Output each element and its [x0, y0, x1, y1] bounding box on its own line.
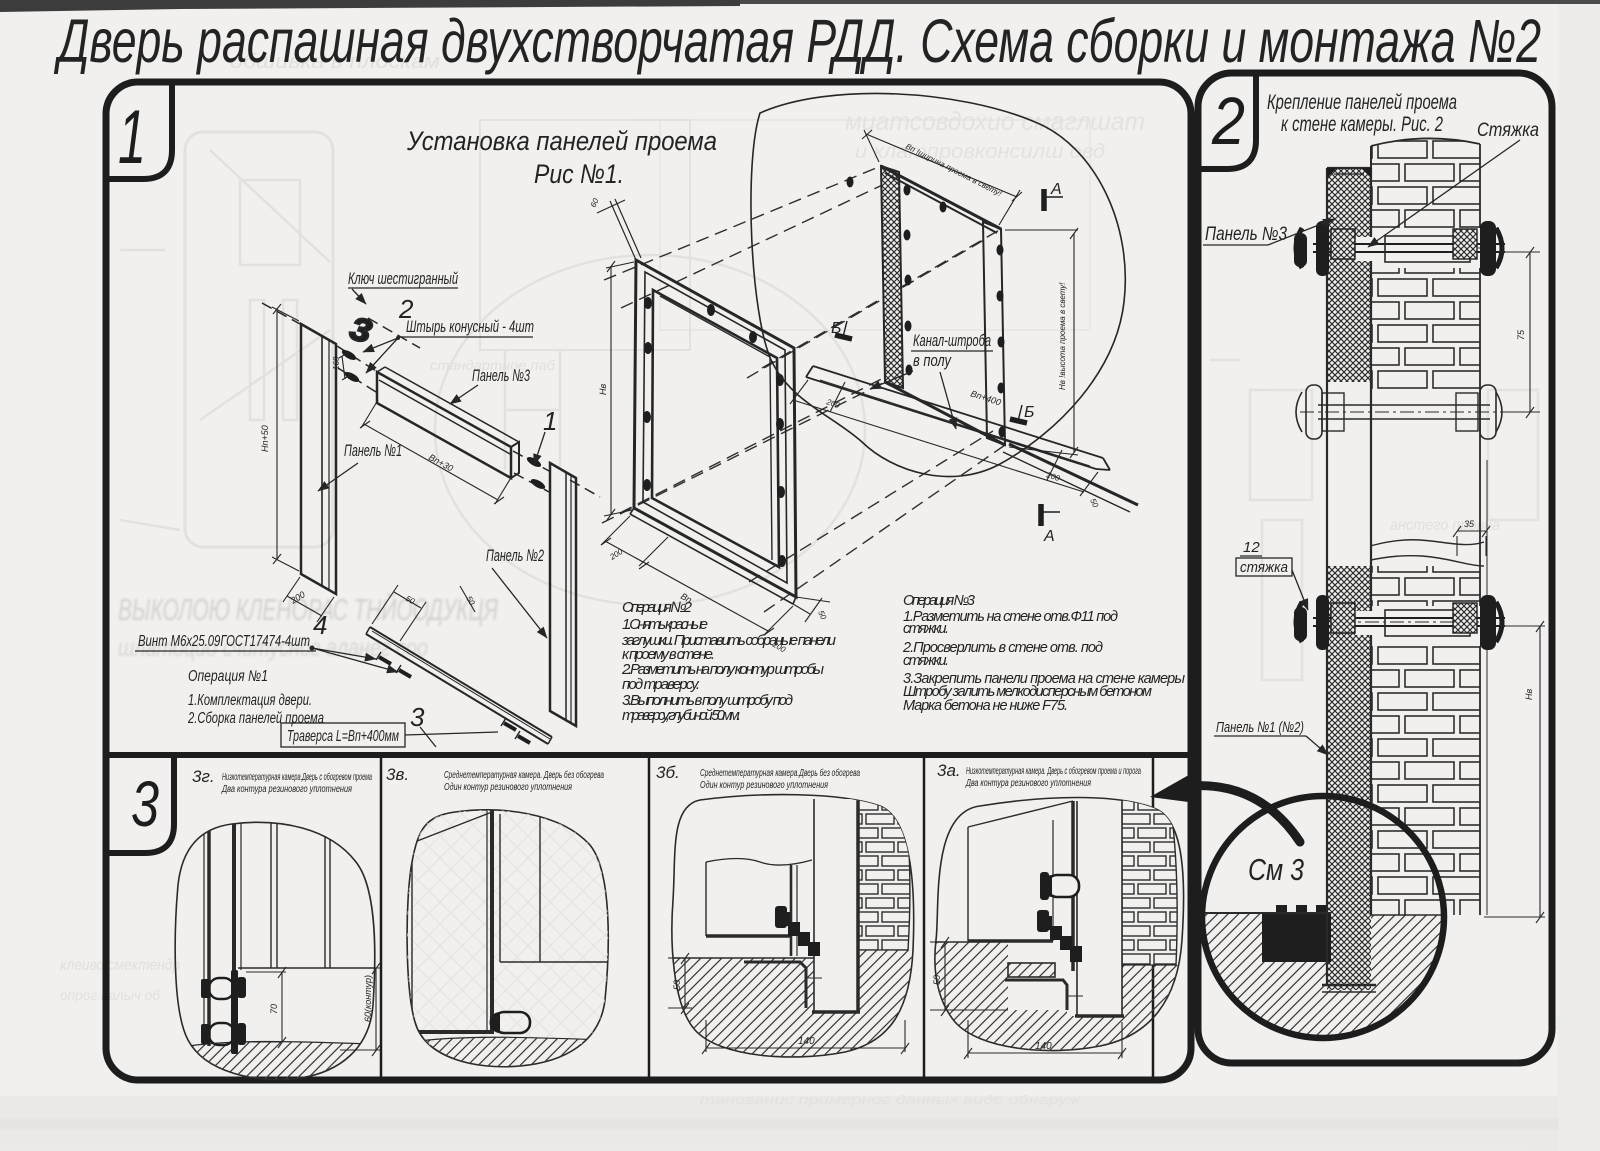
- svg-text:2.Сборка панелей проема: 2.Сборка панелей проема: [187, 710, 324, 727]
- svg-text:4: 4: [313, 610, 327, 640]
- svg-text:Среднетемпературная камера. Дв: Среднетемпературная камера. Дверь без об…: [444, 769, 604, 781]
- svg-text:ВЫКОЛОЮ КЛЕНОРАС ТНЙООДУКЦЯ: ВЫКОЛОЮ КЛЕНОРАС ТНЙООДУКЦЯ: [118, 591, 499, 627]
- svg-text:Ключ шестигранный: Ключ шестигранный: [348, 269, 458, 288]
- svg-text:Канал-штроба: Канал-штроба: [913, 331, 991, 350]
- svg-text:клеиво смектендр: клеиво смектендр: [60, 957, 180, 974]
- svg-text:Один контур резинового уплотне: Один контур резинового уплотнения: [444, 782, 572, 793]
- svg-text:в полу: в полу: [913, 351, 952, 370]
- svg-text:Нв !высота проема в свету!: Нв !высота проема в свету!: [1058, 282, 1067, 390]
- svg-text:140: 140: [1035, 1041, 1052, 1052]
- svg-text:Операция №2: Операция №2: [622, 599, 693, 616]
- svg-text:Два контура резинового уплотне: Два контура резинового уплотнения: [221, 784, 352, 795]
- svg-text:См 3: См 3: [1248, 852, 1304, 887]
- svg-text:опрог налыч об: опрог налыч об: [60, 987, 161, 1003]
- svg-text:Нn+50: Нn+50: [260, 425, 270, 452]
- svg-text:3г.: 3г.: [192, 767, 215, 786]
- svg-text:стяжки.: стяжки.: [903, 653, 949, 669]
- svg-text:3б.: 3б.: [656, 763, 680, 782]
- svg-text:Один контур резинового уплотне: Один контур резинового уплотнения: [700, 780, 828, 791]
- svg-text:Нв: Нв: [1524, 689, 1534, 700]
- svg-text:Операция №1: Операция №1: [188, 668, 268, 685]
- svg-text:Дверь распашная двухстворчатая: Дверь распашная двухстворчатая РДД. Схем…: [54, 7, 1541, 75]
- svg-text:160: 160: [332, 356, 341, 370]
- svg-text:Б: Б: [831, 320, 841, 337]
- svg-text:А: А: [1050, 181, 1062, 198]
- svg-text:1.Снять красные: 1.Снять красные: [622, 616, 708, 633]
- svg-text:Установка панелей проема: Установка панелей проема: [406, 126, 717, 156]
- svg-text:А: А: [1043, 528, 1055, 545]
- svg-text:Нв: Нв: [598, 384, 608, 395]
- svg-text:Марка бетона не ниже F75.: Марка бетона не ниже F75.: [903, 698, 1068, 714]
- svg-text:60(контур): 60(контур): [363, 975, 373, 1022]
- svg-text:и клатпровконсилш овд: и клатпровконсилш овд: [855, 141, 1105, 163]
- svg-text:Рис №1.: Рис №1.: [534, 159, 624, 189]
- svg-text:70: 70: [269, 1004, 279, 1014]
- svg-text:35: 35: [1464, 519, 1475, 529]
- svg-text:Крепление панелей проема: Крепление панелей проема: [1267, 91, 1457, 114]
- svg-text:75: 75: [1516, 329, 1526, 340]
- svg-text:Низкотемпературная камера.Двер: Низкотемпературная камера.Дверь с обогре…: [222, 771, 372, 783]
- svg-text:1: 1: [543, 406, 557, 436]
- svg-text:Панель №1 (№2): Панель №1 (№2): [1216, 719, 1304, 736]
- svg-text:Панель №3: Панель №3: [472, 366, 530, 385]
- svg-text:траверсу, глубиной 50мм.: траверсу, глубиной 50мм.: [622, 707, 741, 724]
- svg-text:1: 1: [118, 95, 146, 180]
- svg-text:стяжка: стяжка: [1240, 559, 1288, 576]
- svg-text:Панель №2: Панель №2: [486, 546, 544, 565]
- svg-text:3а.: 3а.: [937, 761, 961, 780]
- svg-text:Два контура резинового уплотне: Два контура резинового уплотнения: [965, 778, 1091, 789]
- svg-text:под траверсу.: под траверсу.: [622, 676, 700, 693]
- svg-text:Панель №1: Панель №1: [344, 441, 402, 460]
- svg-text:к стене камеры. Рис. 2: к стене камеры. Рис. 2: [1281, 113, 1443, 136]
- svg-text:Среднетемпературная камера.Две: Среднетемпературная камера.Дверь без обо…: [700, 767, 860, 779]
- svg-text:танованис примерног данных вид: танованис примерног данных виде обнаруж: [700, 1092, 1081, 1107]
- svg-text:Операция №3: Операция №3: [903, 593, 975, 609]
- svg-text:3: 3: [410, 702, 425, 732]
- svg-text:50: 50: [672, 980, 682, 990]
- svg-text:Б: Б: [1024, 404, 1034, 421]
- svg-text:стяжки.: стяжки.: [903, 621, 949, 637]
- svg-text:2: 2: [1211, 84, 1245, 159]
- svg-text:140: 140: [798, 1036, 815, 1047]
- svg-text:12: 12: [1243, 539, 1260, 556]
- svg-text:Низкотемпературная камера. Две: Низкотемпературная камера. Дверь с обогр…: [966, 765, 1141, 777]
- svg-text:Стяжка: Стяжка: [1477, 120, 1539, 141]
- svg-text:Штырь конусный - 4шт: Штырь конусный - 4шт: [406, 317, 534, 336]
- svg-text:50: 50: [932, 975, 942, 985]
- svg-text:1.Комплектация двери.: 1.Комплектация двери.: [188, 692, 312, 709]
- svg-text:Винт М6х25.09ГОСТ17474-4шт: Винт М6х25.09ГОСТ17474-4шт: [138, 633, 310, 650]
- svg-text:3в.: 3в.: [386, 765, 409, 784]
- svg-text:миатсовдохио смаглшат: миатсовдохио смаглшат: [845, 106, 1145, 136]
- svg-text:Траверса L=Вп+400мм: Траверса L=Вп+400мм: [287, 728, 399, 745]
- svg-text:3: 3: [131, 768, 159, 840]
